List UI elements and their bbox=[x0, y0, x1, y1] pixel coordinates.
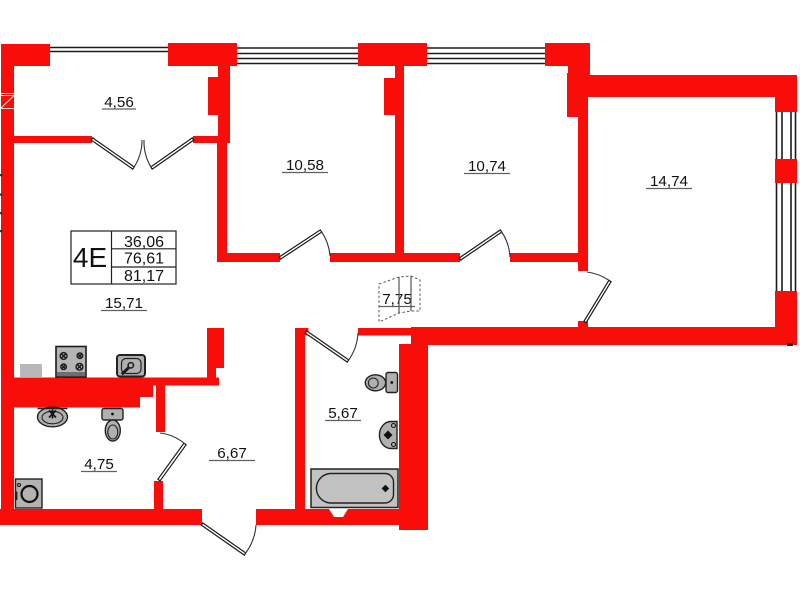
svg-text:81,17: 81,17 bbox=[124, 268, 164, 285]
svg-text:76,61: 76,61 bbox=[124, 251, 164, 268]
svg-text:6,67: 6,67 bbox=[217, 445, 247, 462]
svg-text:10,74: 10,74 bbox=[468, 158, 506, 175]
svg-text:5,67: 5,67 bbox=[328, 405, 358, 422]
svg-text:7,75: 7,75 bbox=[382, 291, 412, 308]
svg-text:15,71: 15,71 bbox=[105, 295, 143, 312]
svg-text:14,74: 14,74 bbox=[650, 173, 688, 190]
svg-text:4Е: 4Е bbox=[73, 242, 107, 273]
svg-text:10,58: 10,58 bbox=[286, 157, 324, 174]
svg-text:4,75: 4,75 bbox=[84, 456, 114, 473]
svg-text:36,06: 36,06 bbox=[124, 234, 164, 251]
